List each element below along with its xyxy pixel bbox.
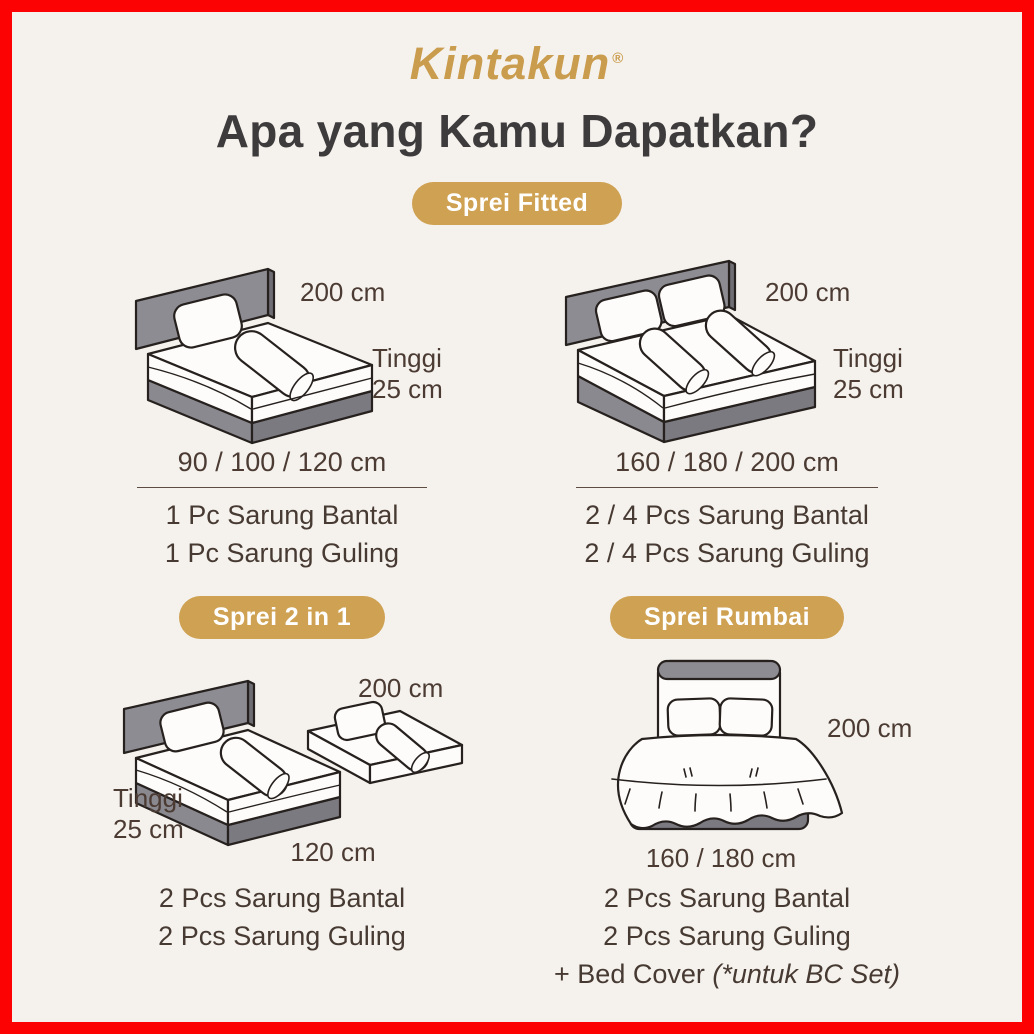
included-item: 2 Pcs Sarung Guling (522, 917, 932, 955)
card-sprei-rumbai: 200 cm 160 / 180 cm 2 Pcs Sarung Bantal … (522, 655, 932, 993)
card-sprei-2in1: 200 cm Tinggi25 cm 120 cm 2 Pcs Sarung B… (72, 655, 492, 993)
label-width-size: 120 cm (183, 837, 483, 868)
label-height: Tinggi25 cm (372, 343, 443, 405)
card-fitted-single: 200 cm Tinggi25 cm 90 / 100 / 120 cm 1 P… (72, 251, 492, 572)
label-length: 200 cm (765, 277, 850, 308)
pillow (719, 698, 772, 736)
page-title: Apa yang Kamu Dapatkan? (12, 104, 1022, 158)
brand-name: Kintakun (410, 38, 611, 89)
label-length: 200 cm (300, 277, 385, 308)
included-item: 1 Pc Sarung Bantal (72, 496, 492, 534)
brand-logo: Kintakun® (12, 38, 1022, 90)
included-item: 2 Pcs Sarung Bantal (522, 879, 932, 917)
registered-mark: ® (612, 50, 624, 67)
label-length: 200 cm (358, 673, 443, 704)
ruffled-bed-illustration (578, 655, 860, 851)
included-item-bedcover: + Bed Cover (*untuk BC Set) (522, 955, 932, 993)
pillow (667, 698, 720, 736)
included-item: 2 Pcs Sarung Bantal (72, 879, 492, 917)
promo-poster: Kintakun® Apa yang Kamu Dapatkan? Sprei … (0, 0, 1034, 1034)
included-item: 2 Pcs Sarung Guling (72, 917, 492, 955)
included-item: 2 / 4 Pcs Sarung Guling (522, 534, 932, 572)
included-item: 1 Pc Sarung Guling (72, 534, 492, 572)
headboard-top-trim (658, 661, 780, 679)
badge-sprei-2in1: Sprei 2 in 1 (179, 596, 385, 639)
card-fitted-double: 200 cm Tinggi25 cm 160 / 180 / 200 cm 2 … (522, 251, 932, 572)
bedcover-note: (*untuk BC Set) (712, 959, 900, 989)
label-height: Tinggi25 cm (113, 783, 184, 845)
badge-sprei-rumbai: Sprei Rumbai (610, 596, 844, 639)
label-height: Tinggi25 cm (833, 343, 904, 405)
label-width-size: 160 / 180 cm (546, 843, 896, 874)
included-item: 2 / 4 Pcs Sarung Bantal (522, 496, 932, 534)
badge-sprei-fitted: Sprei Fitted (412, 182, 622, 225)
label-length: 200 cm (827, 713, 912, 744)
